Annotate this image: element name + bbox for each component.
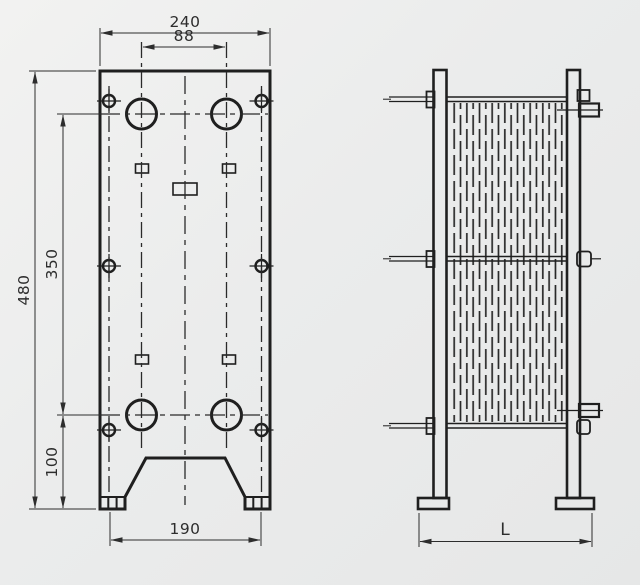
fixture-square bbox=[223, 164, 236, 173]
fixture-square bbox=[223, 355, 236, 364]
front-view-drawing bbox=[97, 42, 274, 509]
dim-label-L: L bbox=[500, 520, 510, 540]
dim-L: L bbox=[419, 513, 592, 547]
frame-foot-right bbox=[556, 498, 594, 509]
dim-190: 190 bbox=[110, 512, 261, 546]
frame-post-left bbox=[434, 70, 447, 498]
dim-350: 350 bbox=[43, 114, 100, 415]
technical-drawing: 240 88 480 350 100 190 bbox=[0, 0, 640, 585]
frame-foot-left bbox=[418, 498, 449, 509]
dim-480: 480 bbox=[15, 71, 96, 509]
side-view-dimensions: L bbox=[419, 513, 592, 547]
plate-foot-right bbox=[245, 497, 270, 509]
plate-pack bbox=[451, 103, 565, 422]
port-holes bbox=[127, 99, 242, 430]
dim-100: 100 bbox=[43, 416, 63, 508]
dim-label-88: 88 bbox=[174, 27, 195, 45]
plate-foot-left bbox=[100, 497, 125, 509]
dim-label-480: 480 bbox=[15, 274, 33, 305]
dim-label-350: 350 bbox=[43, 248, 61, 279]
dim-label-190: 190 bbox=[169, 520, 200, 538]
drawing-canvas: 240 88 480 350 100 190 bbox=[0, 0, 640, 585]
dim-label-100: 100 bbox=[43, 446, 61, 477]
dim-88: 88 bbox=[143, 27, 225, 47]
side-view-drawing bbox=[383, 70, 603, 509]
